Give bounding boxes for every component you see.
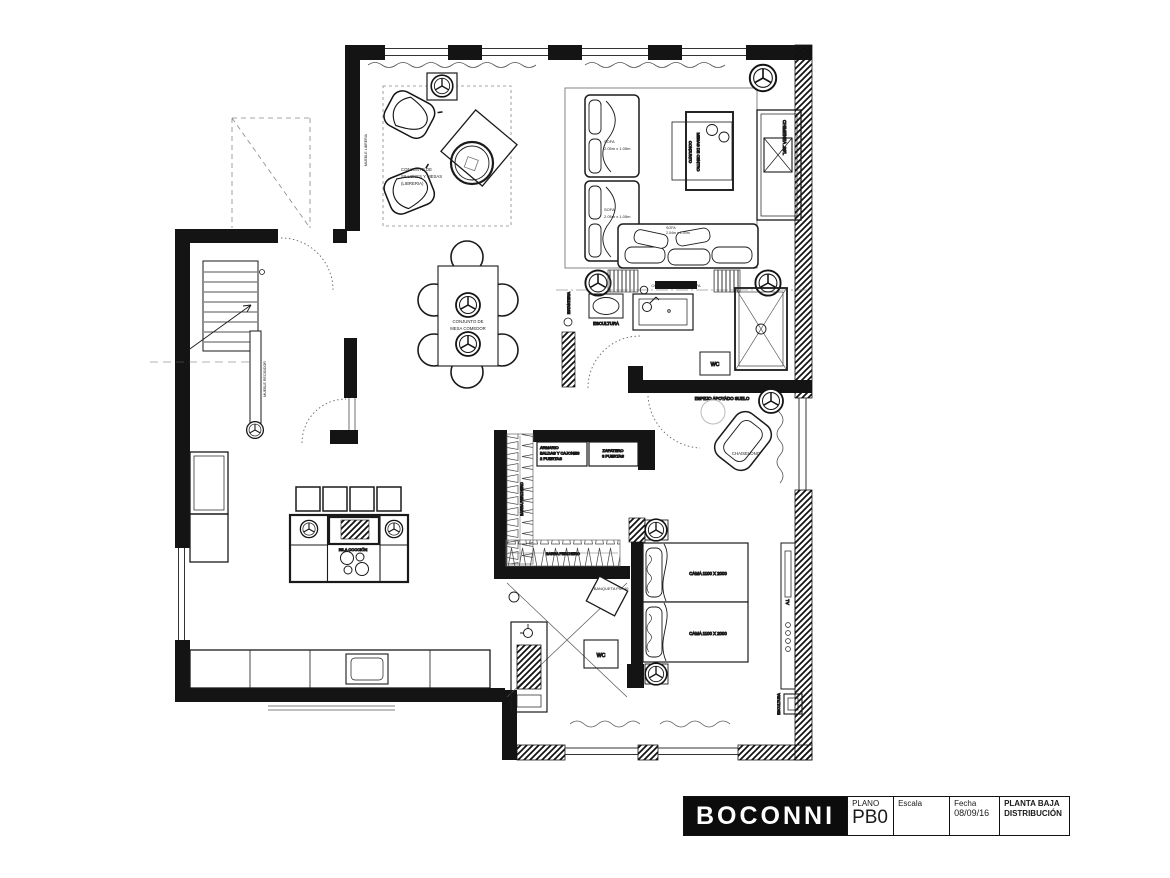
wardrobe-armario: ARMARIO BALDAS Y CAJONES 2 PUERTAS <box>537 442 587 466</box>
wc-label: WC <box>711 362 720 368</box>
stool <box>350 487 374 511</box>
fecha-cell: Fecha 08/09/16 <box>949 797 999 835</box>
master-bedroom: CHAISELONG <box>701 389 783 475</box>
floor-plan: MUEBLE RECIBIDOR CONJUNTO DE SILLONES Y … <box>0 0 1170 878</box>
sillones-label: SILLONES Y MESAS <box>401 174 442 179</box>
sofa-label: 2.05m x 1.05m <box>604 214 631 219</box>
plano-number: PB0 <box>852 808 889 827</box>
ceiling-light-icon <box>645 663 667 685</box>
banqueta <box>586 576 627 616</box>
mesas-centro-label: CONJUNTO <box>688 141 693 163</box>
sofa-label: 2.05m x 1.05m <box>604 146 631 151</box>
ceiling-light-icon <box>431 75 453 97</box>
sofa-label: SOFA <box>666 226 676 230</box>
chaiselong <box>710 407 776 475</box>
ceiling-light-icon <box>385 520 402 537</box>
hanging-rail-horizontal: BARRA PERCHERO <box>506 540 620 566</box>
ceiling-light-icon <box>456 293 480 317</box>
bedroom-2: CAMA 1100 X 2000 CAMA 1100 X 2000 TV ESC… <box>643 519 802 715</box>
living-room: SOFA 2.05m x 1.05m SOFA 2.05m x 1.05m SO… <box>565 65 801 296</box>
oven <box>346 654 388 684</box>
barra-label: BARRA PERCHERO <box>546 552 580 556</box>
armario-label: 2 PUERTAS <box>540 456 562 461</box>
sofa-label: SOFA <box>604 207 615 212</box>
fecha-value: 08/09/16 <box>954 808 995 819</box>
bed: CAMA 1100 X 2000 <box>643 602 748 662</box>
sofa: SOFA 2.04m x 1.00m <box>618 224 758 268</box>
brand-logo: BOCONNI <box>684 797 847 835</box>
barra-label: BARRA PERCHERO <box>520 482 524 516</box>
sheet-title-line1: PLANTA BAJA <box>1004 799 1065 809</box>
shower <box>735 288 787 370</box>
cama-label: CAMA 1100 X 2000 <box>689 571 727 576</box>
cased-opening <box>349 398 355 430</box>
mueble-recibidor: MUEBLE RECIBIDOR <box>250 331 267 423</box>
kitchen-island: ISLA COCCIÓN <box>290 487 408 582</box>
mesa-comedor-label: MESA COMEDOR <box>450 326 486 331</box>
sofa-label: 2.04m x 1.00m <box>666 231 690 235</box>
chimenea-label: CHIMENEA .99'L <box>782 120 787 156</box>
sillones-label: CONJUNTO DE <box>401 167 432 172</box>
wardrobe-zapatero: ZAPATERO 3 PUERTAS <box>589 442 638 466</box>
toilet: WC <box>584 640 618 668</box>
banqueta-label: BANQUETA PIE 40 <box>594 586 629 591</box>
ceiling-light-icon <box>645 519 667 541</box>
coffee-tables: CONJUNTO MESAS DE CENTRO <box>672 112 733 190</box>
stool <box>296 487 320 511</box>
mueble-recibidor-label: MUEBLE RECIBIDOR <box>263 361 267 397</box>
lounge-library: CONJUNTO DE SILLONES Y MESAS (LIBRERIA) … <box>364 73 517 226</box>
mueble-libreria-label: MUEBLE LIBRERIA <box>364 133 368 166</box>
sheet-title-cell: PLANTA BAJA DISTRIBUCIÓN <box>999 797 1069 835</box>
dining-set: CONJUNTO DE MESA COMEDOR <box>418 241 518 388</box>
ceiling-light-icon <box>759 389 783 413</box>
kitchen: ISLA COCCIÓN <box>190 452 490 710</box>
escala-cell: Escala <box>893 797 949 835</box>
ceiling-light-icon <box>247 422 264 439</box>
zapatero-label: ZAPATERO <box>603 448 624 453</box>
chaiselong-label: CHAISELONG <box>732 451 761 456</box>
escultura-label: ESCULTURA <box>593 321 619 326</box>
wc-label: WC <box>597 653 606 659</box>
title-block: BOCONNI PLANO PB0 Escala Fecha 08/09/16 … <box>683 796 1070 836</box>
armario-label: ARMARIO <box>540 445 559 450</box>
cama-label: CAMA 1100 X 2000 <box>689 631 727 636</box>
mesa-comedor-label: CONJUNTO DE <box>453 319 484 324</box>
isla-coccion-label: ISLA COCCIÓN <box>339 547 368 552</box>
stool <box>323 487 347 511</box>
fecha-label: Fecha <box>954 799 995 808</box>
estanteria-label: ESTANTERIA <box>567 291 571 314</box>
zapatero-label: 3 PUERTAS <box>602 454 624 459</box>
espejo-label: ESPEJO APOYADO SUELO <box>695 396 750 401</box>
floor-lamp <box>701 400 725 424</box>
stool <box>377 487 401 511</box>
escultura-label: ESCULTURA <box>777 693 781 715</box>
sofa-label: SOFA <box>604 139 615 144</box>
mesas-centro-label: MESAS DE CENTRO <box>696 133 701 172</box>
sofa: SOFA 2.05m x 1.05m <box>585 95 639 177</box>
sheet-title-line2: DISTRIBUCIÓN <box>1004 809 1065 819</box>
bathroom-2: WC <box>511 622 618 712</box>
toilet: WC <box>700 352 730 375</box>
armario-label: BALDAS Y CAJONES <box>540 451 580 456</box>
label-highlight <box>655 281 697 289</box>
fireplace: CHIMENEA .99'L <box>757 110 801 220</box>
tv-console: TV <box>781 543 795 689</box>
ceiling-light-icon <box>750 65 776 91</box>
ceiling-light-icon <box>585 270 610 295</box>
escala-label: Escala <box>898 799 945 808</box>
tv-label: TV <box>785 599 790 605</box>
dressing-area: ARMARIO BALDAS Y CAJONES 2 PUERTAS ZAPAT… <box>506 434 638 566</box>
plano-cell: PLANO PB0 <box>847 797 893 835</box>
ceiling-light-icon <box>456 332 480 356</box>
bed: CAMA 1100 X 2000 <box>643 543 748 602</box>
sillones-label: (LIBRERIA) <box>401 181 424 186</box>
ceiling-light-icon <box>300 520 317 537</box>
sink-vanity <box>633 294 693 330</box>
